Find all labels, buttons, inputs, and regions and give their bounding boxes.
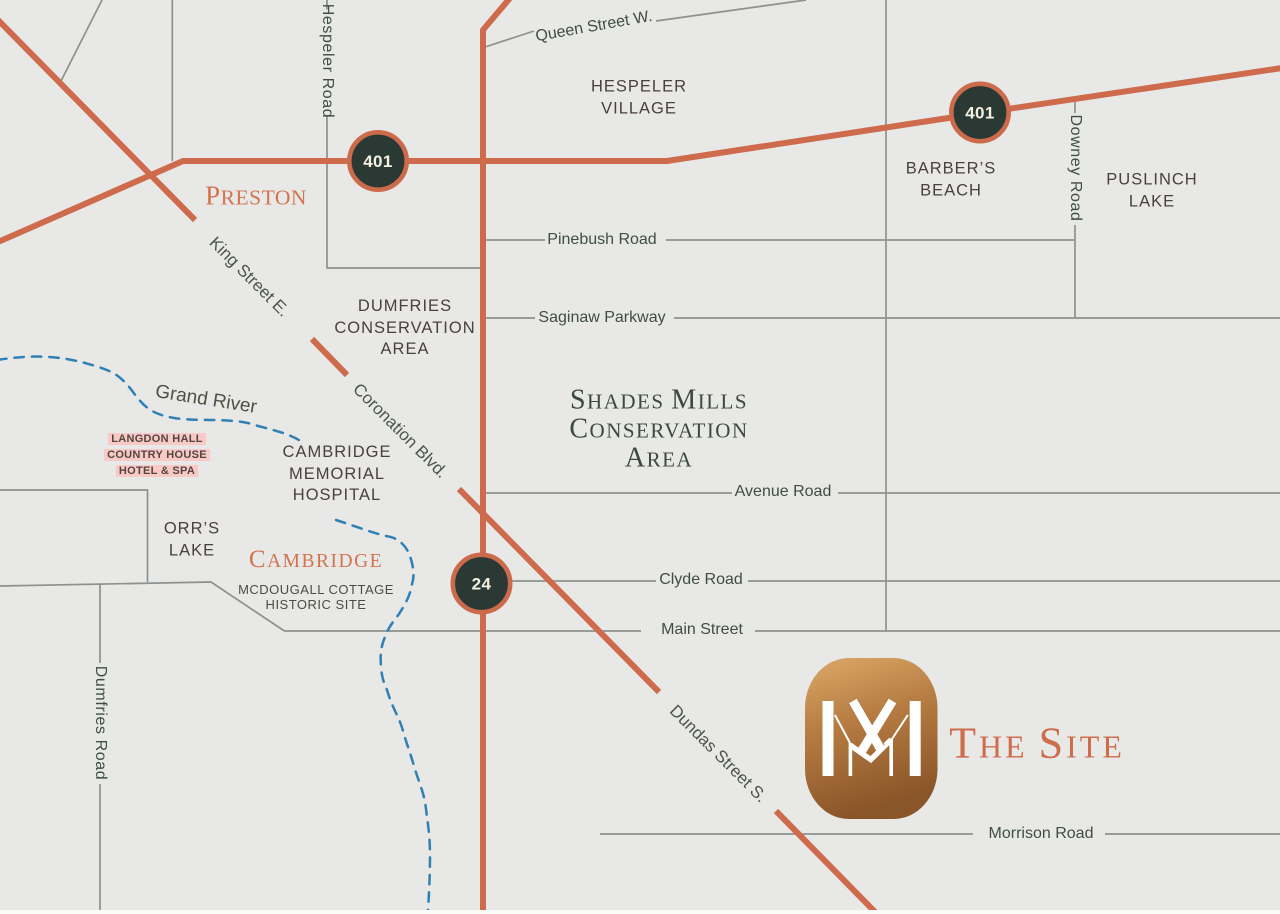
svg-text:401: 401 (363, 152, 393, 171)
svg-text:401: 401 (965, 104, 995, 123)
svg-text:24: 24 (472, 575, 492, 594)
